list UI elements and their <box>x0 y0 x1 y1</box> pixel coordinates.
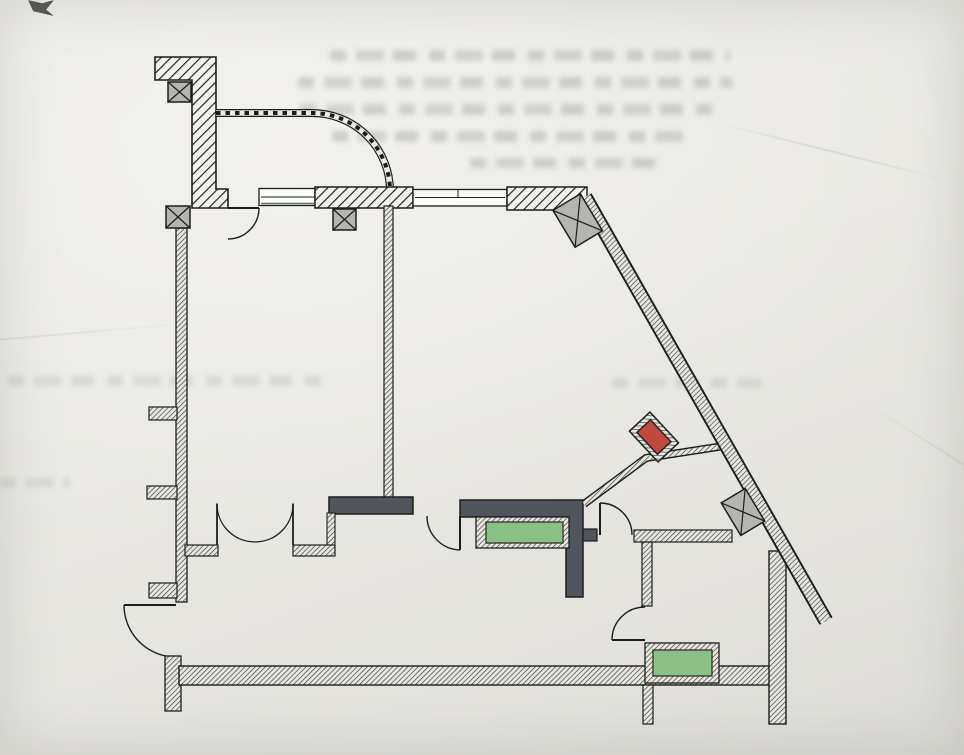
curved-dashed-canopy <box>216 113 390 191</box>
door-between-bars <box>427 516 460 550</box>
bathroom-partition-below-wall <box>643 685 653 724</box>
wall-stub <box>149 407 177 420</box>
bathroom-door <box>612 607 645 640</box>
wall-stub <box>149 583 177 598</box>
double-swing-door <box>217 504 293 546</box>
partition-bar-step <box>583 529 597 541</box>
partition-stub-right <box>293 545 335 556</box>
window-right <box>413 190 507 207</box>
partition-bar-left <box>329 497 413 514</box>
column-top-middle <box>333 209 356 230</box>
top-window-pier <box>315 187 413 208</box>
green-fixture-bathroom <box>645 643 719 683</box>
partition-below-bar <box>327 513 335 547</box>
wall-stub <box>147 486 177 499</box>
diagonal-exterior-wall <box>585 197 826 621</box>
scanned-floorplan-page <box>0 0 964 755</box>
right-exterior-wall <box>769 551 786 724</box>
entry-door <box>124 605 176 657</box>
door-hall <box>600 503 632 535</box>
top-left-l-wall <box>155 57 228 208</box>
column-left <box>166 206 190 228</box>
green-fixture-hall <box>476 517 569 548</box>
left-exterior-wall <box>147 228 187 602</box>
bathroom-partition-vertical <box>642 542 652 606</box>
door-top-left-room <box>228 208 259 239</box>
floorplan-drawing <box>0 0 964 755</box>
column-top-left <box>168 82 191 102</box>
bathroom-partition-horizontal <box>634 530 732 542</box>
window-left <box>259 189 315 206</box>
middle-partition <box>384 206 393 499</box>
partition-stub-left <box>185 545 218 556</box>
